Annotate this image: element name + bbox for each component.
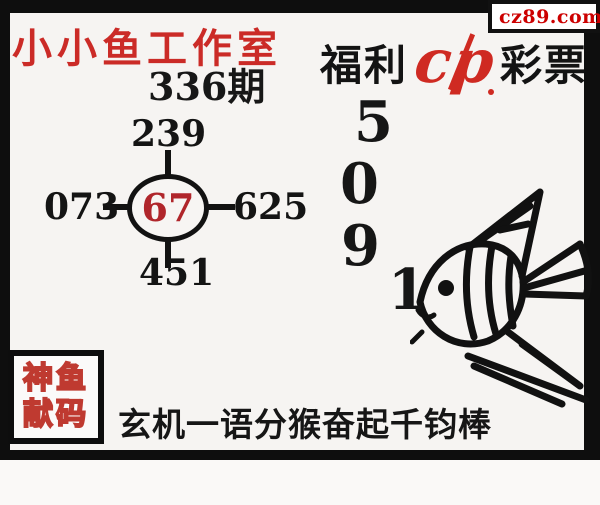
stamp-line-2: 献码 xyxy=(23,397,89,433)
site-badge-label: cz89.com xyxy=(499,6,600,28)
riddle-text: 玄机一语分猴奋起千钧棒 xyxy=(118,398,492,446)
code-digit-1: 5 xyxy=(354,94,393,150)
wheel-circle: 67 xyxy=(127,174,209,242)
angelfish-icon xyxy=(410,184,598,412)
logo-dot-decor xyxy=(488,89,494,95)
wheel-number-left: 073 xyxy=(44,189,119,225)
code-digit-2: 0 xyxy=(340,156,379,212)
welfare-lottery-logo-icon: cp xyxy=(410,27,498,97)
site-badge[interactable]: cz89.com xyxy=(488,0,600,33)
welfare-lottery-brand: 福利 cp 彩票 xyxy=(320,26,588,98)
wheel-center-number: 67 xyxy=(142,189,195,227)
brand-suffix: 彩票 xyxy=(500,32,588,93)
stamp-line-1: 神鱼 xyxy=(23,361,89,397)
wheel-number-top: 239 xyxy=(131,116,206,152)
wheel-spoke-right xyxy=(206,204,235,210)
bottom-margin-strip xyxy=(0,460,600,505)
issue-number: 336期 xyxy=(148,56,265,111)
wheel-number-bottom: 451 xyxy=(139,255,214,291)
stamp-box: 神鱼 献码 xyxy=(8,350,104,444)
brand-prefix: 福利 xyxy=(320,32,408,93)
wheel-number-right: 625 xyxy=(233,189,308,225)
lottery-tip-poster: cz89.com 小小鱼工作室 336期 福利 cp 彩票 239 073 62… xyxy=(0,0,600,505)
code-digit-3: 9 xyxy=(341,218,380,274)
site-badge-inner: cz89.com xyxy=(492,4,596,29)
code-digit-4: 1 xyxy=(388,262,427,318)
